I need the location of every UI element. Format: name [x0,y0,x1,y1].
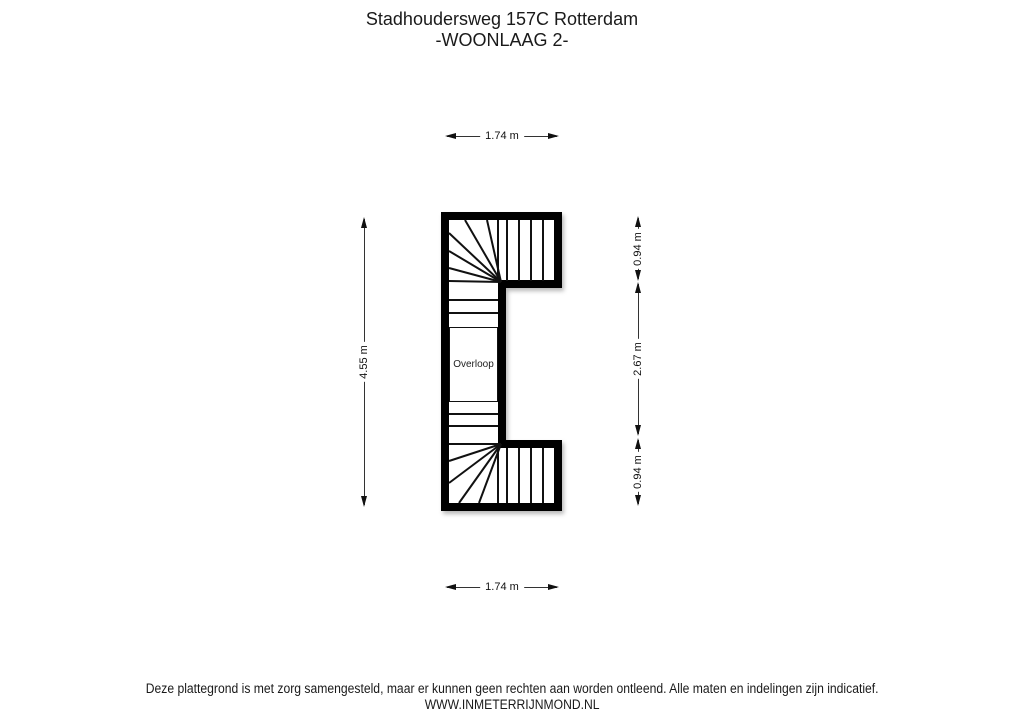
wall-right-upper [554,212,562,288]
dimension-label-right-bottom: 0.94 m [632,452,644,492]
arrow-left-icon [445,133,456,139]
arrow-up-icon [635,438,641,449]
arrow-down-icon [361,496,367,507]
footer: Deze plattegrond is met zorg samengestel… [0,681,1024,713]
dimension-label-top: 1.74 m [480,130,524,142]
arrow-up-icon [361,217,367,228]
dimension-label-right-top: 0.94 m [632,229,644,269]
dimension-label-bottom: 1.74 m [480,581,524,593]
arrow-left-icon [445,584,456,590]
room-label-overloop: Overloop [449,327,498,402]
wall-lower-arm-top [498,440,562,448]
wall-bottom [441,503,562,511]
wall-upper-arm-bottom [498,280,562,288]
wall-stairwell-inner [498,280,506,448]
wall-left [441,212,449,511]
arrow-down-icon [635,495,641,506]
footer-website-text: WWW.INMETERRIJNMOND.NL [425,697,600,713]
floorplan-page: Stadhoudersweg 157C Rotterdam -WOONLAAG … [0,0,1024,724]
arrow-up-icon [635,282,641,293]
arrow-down-icon [635,425,641,436]
arrow-right-icon [548,133,559,139]
dimension-label-right-middle: 2.67 m [632,339,644,379]
footer-disclaimer: Deze plattegrond is met zorg samengestel… [0,681,1024,697]
arrow-up-icon [635,216,641,227]
arrow-right-icon [548,584,559,590]
footer-website: WWW.INMETERRIJNMOND.NL [0,697,1024,713]
arrow-down-icon [635,270,641,281]
dimension-label-left: 4.55 m [358,342,370,382]
wall-right-lower [554,440,562,511]
wall-top [441,212,562,220]
floorplan-canvas [0,0,1024,724]
footer-disclaimer-text: Deze plattegrond is met zorg samengestel… [146,681,879,697]
